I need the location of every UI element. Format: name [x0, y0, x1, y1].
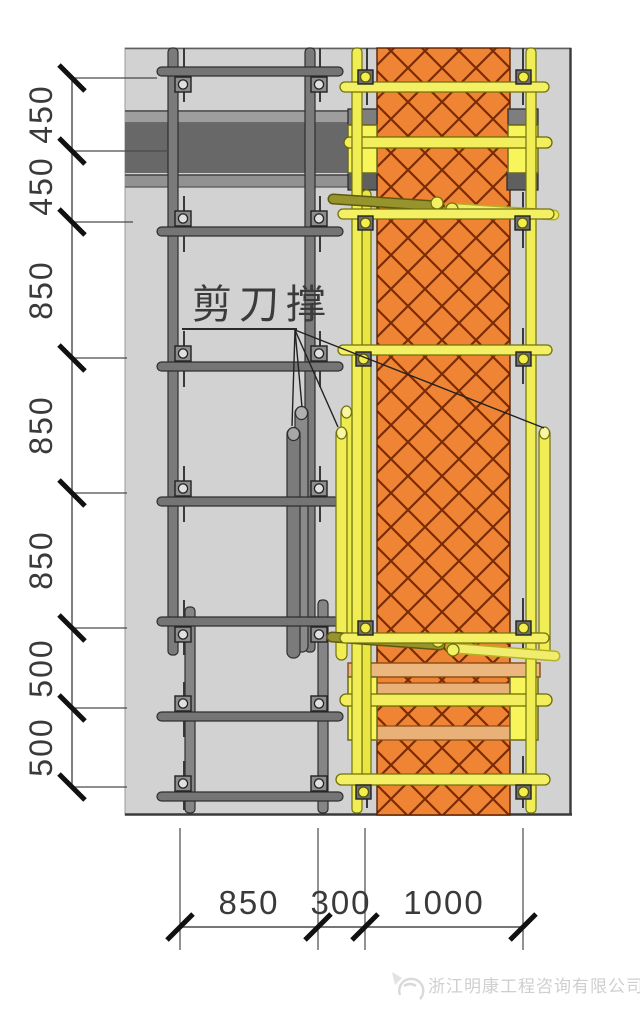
scissor-brace-label: 剪刀撑: [192, 283, 333, 327]
dim-left-2: 450: [23, 156, 59, 215]
drawing-canvas: 剪刀撑 450 450 850 850: [0, 0, 640, 1015]
dim-left-7: 500: [23, 717, 59, 776]
dim-left-4: 850: [23, 395, 59, 454]
post-yellow-right: [526, 48, 536, 813]
dim-left-6: 500: [23, 638, 59, 697]
dimension-bottom-chain: 850 300 1000: [167, 828, 536, 950]
tie-rod-upper: [344, 137, 552, 148]
dim-bottom-3: 1000: [403, 884, 484, 921]
dim-bottom-2: 300: [310, 884, 371, 921]
scissor-brace-tube-yellow-right: [539, 428, 550, 660]
dim-bottom-1: 850: [218, 884, 279, 921]
dim-left-1: 450: [23, 84, 59, 143]
dim-left-3: 850: [23, 260, 59, 319]
construction-drawing: 剪刀撑 450 450 850 850: [0, 0, 640, 1015]
company-logo-icon: [392, 972, 423, 999]
scissor-brace-tube-yellow-1: [336, 428, 347, 660]
watermark: 浙江明康工程咨询有限公司: [392, 972, 640, 999]
beam-lower: [340, 663, 552, 740]
post-yellow-left-inner: [362, 190, 371, 788]
dim-left-5: 850: [23, 530, 59, 589]
post-yellow-left: [352, 48, 362, 813]
company-name: 浙江明康工程咨询有限公司: [428, 977, 640, 996]
tie-rod-lower: [340, 694, 552, 706]
